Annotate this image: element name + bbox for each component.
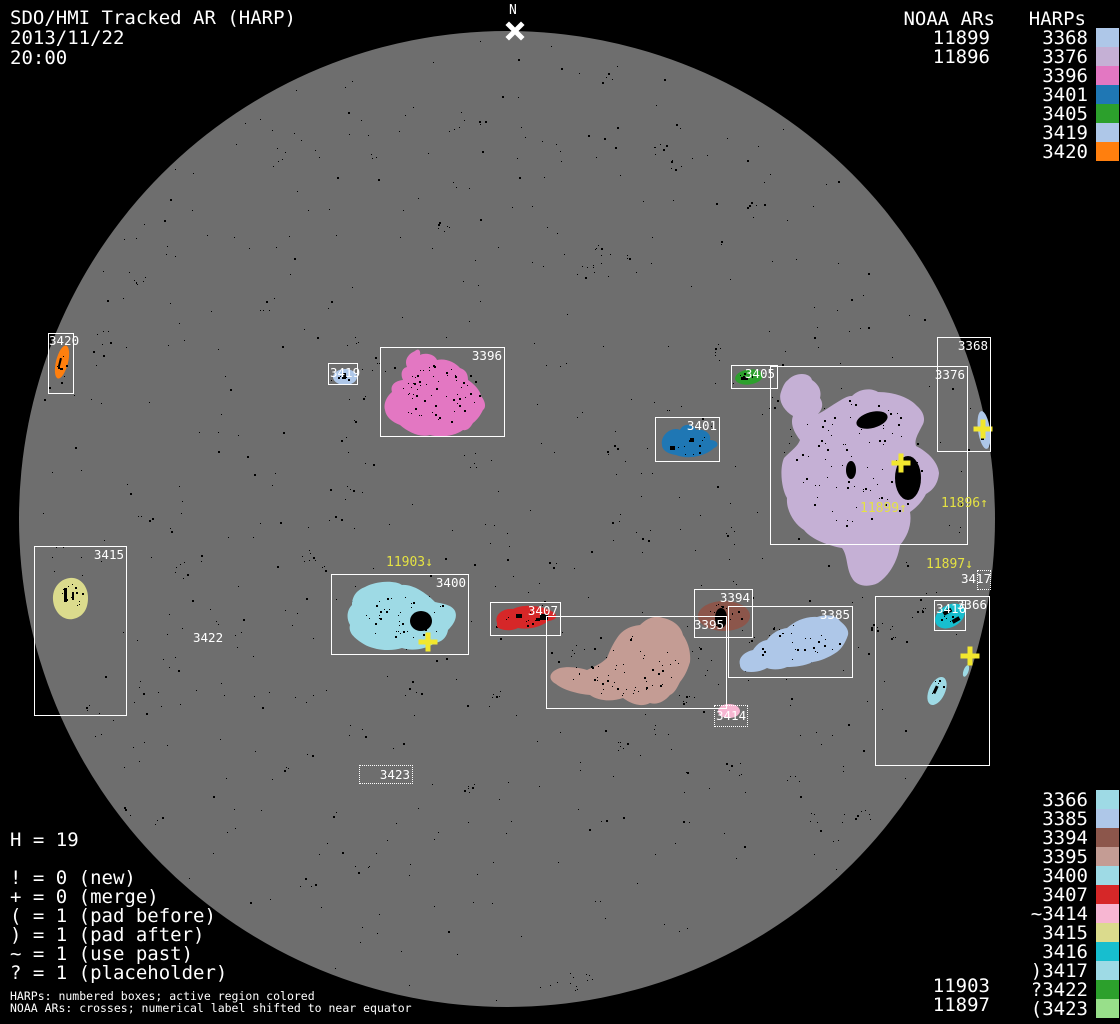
harp-color-swatch xyxy=(1096,923,1119,942)
noaa-11899-label: 11899↑ xyxy=(860,502,907,515)
harp-3385-label: 3385 xyxy=(820,608,850,621)
noaa-11903-label: 11903↓ xyxy=(386,556,433,569)
plot-date: 2013/11/22 xyxy=(10,28,124,48)
flag-legend-line: ( = 1 (pad before) xyxy=(10,906,216,926)
harp-color-swatch xyxy=(1096,847,1119,866)
harp-color-swatch xyxy=(1096,828,1119,847)
harp-color-swatch xyxy=(1096,123,1119,142)
harp-3401-box: 3401 xyxy=(655,417,720,462)
harp-color-swatch xyxy=(1096,904,1119,923)
harp-color-swatch xyxy=(1096,866,1119,885)
harp-3368-box: 3368 xyxy=(937,337,991,452)
harp-color-swatch xyxy=(1096,980,1119,999)
harp-3415-box: 3415 xyxy=(34,546,127,716)
harp-3416-box: 3416 xyxy=(934,600,966,631)
harp-color-swatch xyxy=(1096,809,1119,828)
harp-full-disk-plot: 3420 3419 3396 3405 3376 3368 3401 3415 … xyxy=(0,0,1120,1024)
harp-3368-label: 3368 xyxy=(958,339,988,352)
flag-legend-line: ! = 0 (new) xyxy=(10,868,136,888)
plot-title: SDO/HMI Tracked AR (HARP) xyxy=(10,8,296,28)
harp-3420-box: 3420 xyxy=(48,333,74,394)
harp-3414-label: 3414 xyxy=(716,709,746,722)
noaa-11896-label: 11896↑ xyxy=(941,497,988,510)
harp-color-swatch xyxy=(1096,85,1119,104)
harp-color-swatch xyxy=(1096,999,1119,1018)
harp-color-swatch xyxy=(1096,142,1119,161)
harp-3416-label: 3416 xyxy=(936,602,966,615)
harp-3419-box: 3419 xyxy=(328,363,358,385)
harp-color-swatch xyxy=(1096,104,1119,123)
harp-3395-box: 3395 xyxy=(546,616,727,709)
north-pole-x-marker xyxy=(505,21,524,40)
harp-3419-label: 3419 xyxy=(330,366,360,379)
harp-legend-item: 3420 xyxy=(1042,143,1088,162)
harp-3414-box: 3414 xyxy=(714,705,748,727)
harp-legend-item: (3423 xyxy=(1031,1000,1088,1019)
harp-3417-label: 3417 xyxy=(961,572,991,585)
h-count: H = 19 xyxy=(10,830,79,850)
harp-color-swatch xyxy=(1096,790,1119,809)
harp-3385-box: 3385 xyxy=(728,606,853,678)
harp-3394-label: 3394 xyxy=(720,591,750,604)
flag-legend-line: + = 0 (merge) xyxy=(10,887,159,907)
harp-3422-label: 3422 xyxy=(193,631,223,644)
harp-3415-label: 3415 xyxy=(94,548,124,561)
harp-3400-label: 3400 xyxy=(436,576,466,589)
harp-3423-label: 3423 xyxy=(380,768,410,781)
harp-color-swatch xyxy=(1096,66,1119,85)
harp-color-swatch xyxy=(1096,28,1119,47)
footer-note: NOAA ARs: crosses; numerical label shift… xyxy=(10,1002,412,1014)
harp-color-swatch xyxy=(1096,47,1119,66)
flag-legend-line: ) = 1 (pad after) xyxy=(10,925,204,945)
noaa-ar-item: 11897 xyxy=(933,996,990,1015)
harp-3400-box: 3400 xyxy=(331,574,469,655)
harp-3396-box: 3396 xyxy=(380,347,505,437)
harp-3396-label: 3396 xyxy=(472,349,502,362)
noaa-ar-item: 11896 xyxy=(933,48,990,67)
harp-3420-label: 3420 xyxy=(49,334,79,347)
harp-3423-box: 3423 xyxy=(359,765,413,784)
harp-color-swatch xyxy=(1096,961,1119,980)
noaa-11897-label: 11897↓ xyxy=(926,558,973,571)
harp-3366-box: 3366 xyxy=(875,596,990,766)
harp-color-swatch xyxy=(1096,885,1119,904)
flag-legend-line: ~ = 1 (use past) xyxy=(10,944,193,964)
harp-color-swatch xyxy=(1096,942,1119,961)
harp-3395-label: 3395 xyxy=(694,618,724,631)
flag-legend-line: ? = 1 (placeholder) xyxy=(10,963,227,983)
north-label: N xyxy=(509,4,517,17)
harp-3401-label: 3401 xyxy=(687,419,717,432)
plot-time: 20:00 xyxy=(10,48,67,68)
